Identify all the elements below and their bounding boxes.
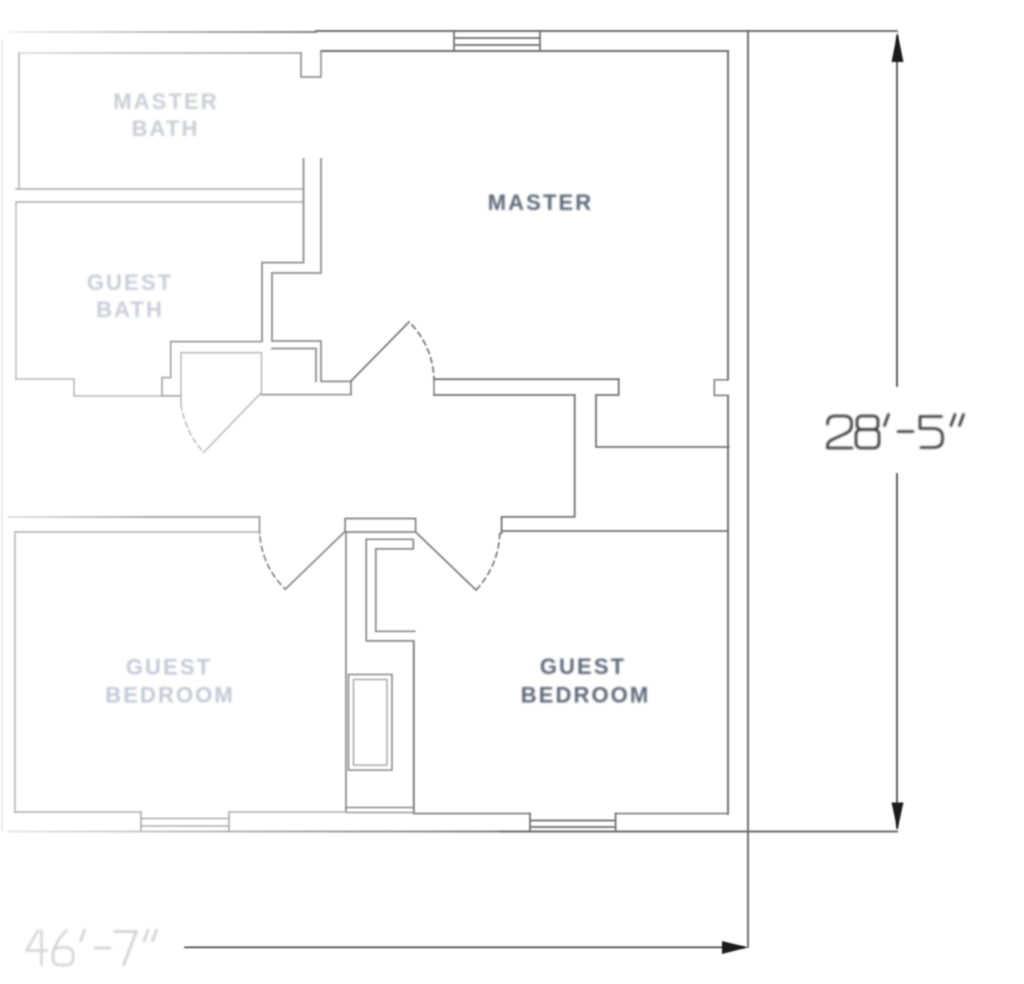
svg-text:MASTER: MASTER xyxy=(488,190,594,215)
svg-text:BEDROOM: BEDROOM xyxy=(521,683,651,708)
svg-text:BATH: BATH xyxy=(132,116,200,141)
svg-text:GUEST: GUEST xyxy=(540,654,626,679)
svg-text:GUEST: GUEST xyxy=(126,655,212,680)
svg-text:BATH: BATH xyxy=(96,297,164,322)
svg-text:MASTER: MASTER xyxy=(113,89,219,114)
svg-text:BEDROOM: BEDROOM xyxy=(105,683,235,708)
svg-text:GUEST: GUEST xyxy=(87,270,173,295)
